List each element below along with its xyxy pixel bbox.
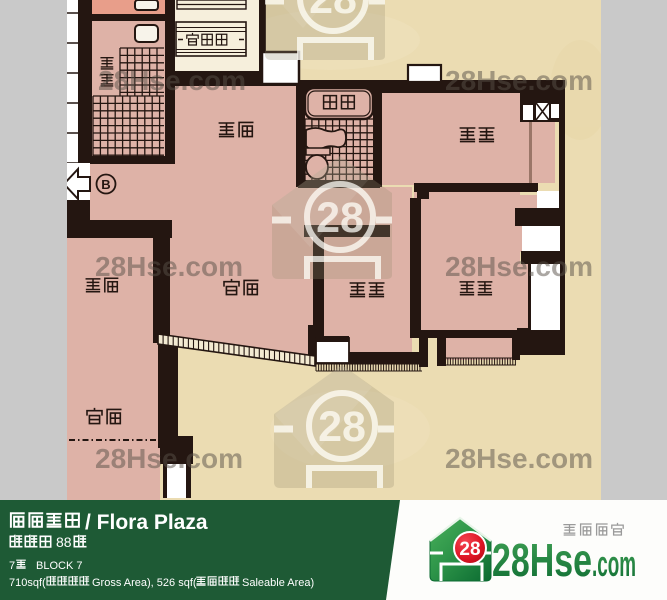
svg-text:710sqf(: 710sqf( bbox=[9, 577, 46, 589]
svg-text:28Hse.com: 28Hse.com bbox=[445, 65, 593, 96]
svg-text:7: 7 bbox=[9, 560, 15, 572]
svg-text:28Hse.com: 28Hse.com bbox=[98, 65, 246, 96]
svg-text:28: 28 bbox=[459, 539, 480, 560]
svg-text:28Hse.com: 28Hse.com bbox=[445, 251, 593, 282]
svg-text:28Hse.com: 28Hse.com bbox=[445, 443, 593, 474]
svg-text:88: 88 bbox=[56, 534, 72, 550]
svg-text:BLOCK 7: BLOCK 7 bbox=[36, 560, 82, 572]
svg-text:.com: .com bbox=[592, 543, 636, 584]
svg-text:28: 28 bbox=[316, 194, 364, 242]
svg-text:/ Flora Plaza: / Flora Plaza bbox=[85, 511, 208, 534]
svg-text:28: 28 bbox=[318, 403, 366, 451]
svg-text:Gross Area), 526 sqf(: Gross Area), 526 sqf( bbox=[92, 577, 197, 589]
svg-text:28: 28 bbox=[309, 0, 357, 23]
svg-text:Saleable Area): Saleable Area) bbox=[242, 577, 314, 589]
svg-text:B: B bbox=[101, 177, 110, 192]
svg-text:28Hse.com: 28Hse.com bbox=[95, 251, 243, 282]
svg-text:28Hse: 28Hse bbox=[492, 534, 592, 586]
svg-text:28Hse.com: 28Hse.com bbox=[95, 443, 243, 474]
